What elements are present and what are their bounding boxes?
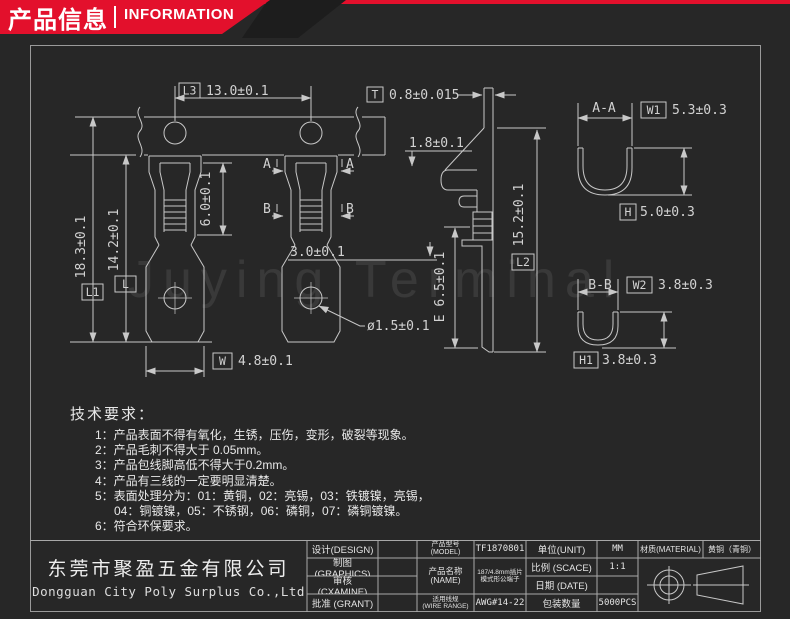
name-label-en: (NAME) bbox=[430, 576, 460, 586]
tech-requirement-item: 4：产品有三线的一定要明显清楚。 bbox=[95, 474, 550, 489]
section-bb-view: B-B W2 3.8±0.3 H1 3.8±0.3 bbox=[574, 277, 713, 368]
dim-l1: 18.3±0.1 bbox=[74, 216, 89, 279]
date-value bbox=[597, 576, 638, 594]
section-aa-view: A-A W1 5.3±0.3 H 5.0±0.3 bbox=[578, 101, 727, 220]
design-label: 设计(DESIGN) bbox=[307, 540, 378, 558]
dim-6: 6.0±0.1 bbox=[199, 172, 214, 227]
section-aa-title: A-A bbox=[592, 101, 616, 116]
grant-value-cell bbox=[378, 594, 417, 612]
company-name-cn: 东莞市聚盈五金有限公司 bbox=[47, 554, 289, 581]
name-value: 187/4.8mm插片 模式形公端子 bbox=[474, 558, 526, 594]
dim-w-tag: W bbox=[219, 354, 226, 368]
graphics-label: 制图(GRAPHICS) bbox=[307, 558, 378, 576]
material-label: 材质(MATERIAL) bbox=[638, 540, 703, 558]
banner-red-shape: 产品信息 INFORMATION bbox=[0, 0, 270, 34]
unit-value: MM bbox=[597, 540, 638, 558]
front-view: L3 13.0±0.1 6.0±0.1 L1 18.3±0.1 L 14.2±0… bbox=[70, 83, 430, 377]
wire-range-label: 适用线规 (WIRE RANGE) bbox=[417, 594, 474, 612]
tech-requirement-item: 5：表面处理分为：01：黄铜，02：亮锡，03：铁镀镍，亮锡， bbox=[95, 489, 550, 504]
dim-l3-tag: L3 bbox=[183, 84, 197, 98]
name-value-line1: 187/4.8mm插片 bbox=[477, 569, 523, 577]
model-value: TF1870801 bbox=[474, 540, 526, 558]
section-bb-title: B-B bbox=[588, 278, 612, 293]
model-label-cn: 产品型号 bbox=[432, 541, 460, 549]
projection-symbol-icon bbox=[645, 558, 755, 612]
dim-l: 14.2±0.1 bbox=[107, 209, 122, 272]
model-label-en: (MODEL) bbox=[431, 549, 461, 557]
section-a-right-label: A bbox=[346, 157, 354, 172]
dim-l3: 13.0±0.1 bbox=[206, 84, 269, 99]
material-value: 黄铜（青铜） bbox=[703, 540, 761, 558]
scale-label: 比例 (SCACE) bbox=[526, 558, 597, 576]
banner-separator bbox=[114, 6, 116, 28]
dim-w2: 3.8±0.3 bbox=[658, 278, 713, 293]
unit-label: 单位(UNIT) bbox=[526, 540, 597, 558]
dim-h1: 3.8±0.3 bbox=[602, 353, 657, 368]
dim-18: 1.8±0.1 bbox=[409, 136, 464, 151]
dim-30: 3.0±0.1 bbox=[290, 245, 345, 260]
dim-l2-tag: L2 bbox=[516, 255, 530, 269]
company-cell: 东莞市聚盈五金有限公司 Dongguan City Poly Surplus C… bbox=[30, 540, 307, 612]
examine-value-cell bbox=[378, 576, 417, 594]
side-view: T 0.8±0.015 1.8±0.1 3.0±0.1 E 6.5±0.1 L2… bbox=[288, 87, 546, 352]
dim-h-tag: H bbox=[625, 205, 632, 219]
scale-value: 1:1 bbox=[597, 558, 638, 576]
dim-t: 0.8±0.015 bbox=[389, 88, 459, 103]
date-label: 日期 (DATE) bbox=[526, 576, 597, 594]
section-b-right-label: B bbox=[346, 202, 354, 217]
grant-label: 批准 (GRANT) bbox=[307, 594, 378, 612]
dim-hole: ø1.5±0.1 bbox=[367, 319, 430, 334]
dim-l-tag: L bbox=[122, 277, 129, 291]
dim-l1-tag: L1 bbox=[86, 285, 100, 299]
dim-h: 5.0±0.3 bbox=[640, 205, 695, 220]
name-label: 产品名称 (NAME) bbox=[417, 558, 474, 594]
banner-title-cn: 产品信息 bbox=[8, 0, 108, 35]
banner: 产品信息 INFORMATION bbox=[0, 0, 790, 40]
dim-w1: 5.3±0.3 bbox=[672, 103, 727, 118]
wire-range-label-cn: 适用线规 bbox=[433, 596, 459, 604]
banner-title-en: INFORMATION bbox=[124, 6, 234, 29]
model-label: 产品型号 (MODEL) bbox=[417, 540, 474, 558]
design-value-cell bbox=[378, 540, 417, 558]
dim-l2: 15.2±0.1 bbox=[512, 184, 527, 247]
projection-cell bbox=[638, 558, 761, 612]
tech-requirement-item: 04：铜镀镍，05：不锈钢，06：磷铜，07：磷铜镀镍。 bbox=[114, 504, 550, 519]
tech-requirement-item: 1：产品表面不得有氧化，生锈，压伤，变形，破裂等现象。 bbox=[95, 428, 550, 443]
qty-label: 包装数量 bbox=[526, 594, 597, 612]
tech-requirements: 技术要求： 1：产品表面不得有氧化，生锈，压伤，变形，破裂等现象。 2：产品毛刺… bbox=[70, 403, 550, 534]
wire-range-value: AWG#14-22 bbox=[474, 594, 526, 612]
dim-w2-tag: W2 bbox=[633, 278, 647, 292]
examine-label: 审核 (CXAMINE) bbox=[307, 576, 378, 594]
dim-e: E 6.5±0.1 bbox=[433, 252, 448, 322]
dim-w1-tag: W1 bbox=[647, 103, 661, 117]
dim-h1-tag: H1 bbox=[579, 353, 593, 367]
company-name-en: Dongguan City Poly Surplus Co.,Ltd bbox=[32, 584, 305, 599]
section-b-left-label: B bbox=[263, 202, 271, 217]
graphics-value-cell bbox=[378, 558, 417, 576]
section-a-left-label: A bbox=[263, 157, 271, 172]
dim-t-tag: T bbox=[372, 88, 379, 102]
wire-range-label-en: (WIRE RANGE) bbox=[422, 603, 468, 611]
tech-requirement-item: 3：产品包线脚高低不得大于0.2mm。 bbox=[95, 458, 550, 473]
tech-requirements-title: 技术要求： bbox=[70, 403, 550, 424]
tech-requirement-item: 6：符合环保要求。 bbox=[95, 519, 550, 534]
tech-requirement-item: 2：产品毛刺不得大于 0.05mm。 bbox=[95, 443, 550, 458]
title-block: 东莞市聚盈五金有限公司 Dongguan City Poly Surplus C… bbox=[30, 540, 761, 612]
section-markers: A A B B bbox=[263, 157, 354, 217]
name-value-line2: 模式形公端子 bbox=[481, 576, 520, 584]
dim-w: 4.8±0.1 bbox=[238, 354, 293, 369]
qty-value: 5000PCS bbox=[597, 594, 638, 612]
